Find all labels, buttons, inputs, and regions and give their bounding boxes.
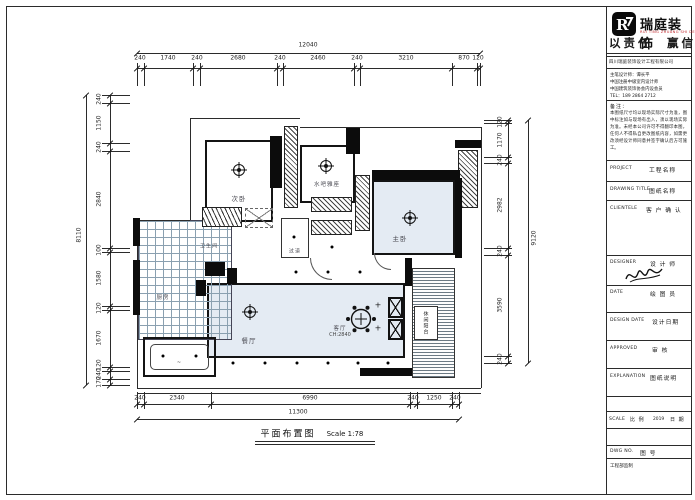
company-name: 四川瑞庭装饰设计工程有限公司 xyxy=(609,59,673,65)
row-dwgno-cn: 图 号 xyxy=(640,448,656,457)
row-date-en: DATE xyxy=(610,290,623,295)
company-info-2: 中国注册中级室内设计师 xyxy=(610,79,658,85)
row-scale-en: SCALE xyxy=(609,417,625,422)
row-approved-cn: 审 核 xyxy=(652,345,668,354)
scale-year: 2019 xyxy=(653,417,664,422)
notes-text: 本图纸尺寸均以现场实际尺寸为准，图中标注如与现场有出入，须以现场实际为准。未经本… xyxy=(610,111,687,153)
caption-scale: Scale 1:78 xyxy=(327,430,364,438)
row-project-en: PROJECT xyxy=(610,166,632,171)
row-explanation-en: EXPLANATION xyxy=(610,374,645,379)
caption-title: 平面布置图 xyxy=(260,427,315,440)
company-info-1: 主笔设计师：谭长平 xyxy=(610,72,650,78)
brand-logo-icon: R xyxy=(612,12,636,36)
row-designdate-cn: 设计日期 xyxy=(652,317,679,326)
title-block: R 瑞庭装饰 RUI TING ZHUANG SHI DECORATION 以责… xyxy=(0,0,695,500)
brand-subtitle: RUI TING ZHUANG SHI DECORATION xyxy=(640,30,695,34)
row-project-cn: 工程名称 xyxy=(649,165,676,174)
notes-label: 备注： xyxy=(610,103,628,110)
dept-label: 工程部监制 xyxy=(610,463,633,469)
designer-signature xyxy=(622,263,668,285)
row-clientele-cn: 客 户 确 认 xyxy=(646,205,682,214)
row-explanation-cn: 图纸说明 xyxy=(650,373,677,382)
brand-slogan: 以责任 赢信任 xyxy=(609,35,695,51)
drawing-sheet: { "colors": {"room_fill": "#e4ebf3", "li… xyxy=(0,0,695,500)
company-phone: TEL：189 2864 2712 xyxy=(610,93,656,99)
row-designdate-en: DESIGN DATE xyxy=(610,318,644,323)
row-drawingtitle-en: DRAWING TITLE xyxy=(610,187,650,192)
row-scale-cn: 比 例 xyxy=(630,416,645,423)
row-dwgno-en: DWG NO. xyxy=(610,449,634,454)
row-drawingtitle-cn: 图纸名称 xyxy=(649,186,676,195)
row-date-cn: 绘 图 员 xyxy=(650,289,676,298)
row-approved-en: APPROVED xyxy=(610,346,637,351)
company-info-3: 中国建筑装饰协会内设会员 xyxy=(610,86,663,92)
row-clientele-en: CLIENTELE xyxy=(610,206,637,211)
scale-date-cn: 日 期 xyxy=(670,416,685,423)
